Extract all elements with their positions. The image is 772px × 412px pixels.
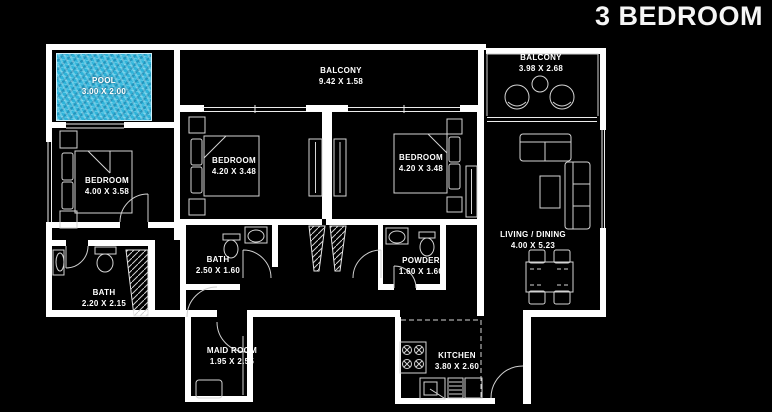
wall <box>324 105 348 112</box>
wall <box>478 48 484 108</box>
wall <box>46 44 52 317</box>
wall <box>523 310 531 404</box>
room-label-maid: MAID ROOM 1.95 X 2.55 <box>207 346 257 368</box>
wall <box>180 284 240 290</box>
wall <box>124 122 180 128</box>
wall <box>326 219 477 225</box>
wall <box>272 225 278 267</box>
coffee-table-icon <box>540 176 560 208</box>
wall <box>185 396 253 402</box>
wardrobe-icon <box>309 139 477 217</box>
outdoor-chairs-icon <box>505 76 574 109</box>
plan-title: 3 BEDROOM <box>595 1 763 32</box>
wall <box>176 44 486 50</box>
room-label-bedroom-left: BEDROOM 4.00 X 3.58 <box>85 176 129 198</box>
wall <box>174 44 180 240</box>
room-label-bedroom-right: BEDROOM 4.20 X 3.48 <box>399 153 443 175</box>
room-label-living: LIVING / DINING 4.00 X 5.23 <box>500 230 566 252</box>
swimming-pool: POOL 3.00 X 2.00 <box>56 53 152 121</box>
room-label-bath-mid: BATH 2.50 X 1.60 <box>196 255 240 277</box>
kitchen-sink-icon <box>420 378 445 399</box>
wall <box>306 105 326 112</box>
room-label-kitchen: KITCHEN 3.80 X 2.60 <box>435 351 479 373</box>
wall <box>378 225 383 287</box>
wall <box>322 112 332 219</box>
wall <box>46 122 66 128</box>
wall <box>180 105 204 112</box>
room-label-bedroom-mid: BEDROOM 4.20 X 3.48 <box>212 156 256 178</box>
wall <box>46 310 155 317</box>
wall <box>378 284 394 290</box>
room-label-balcony-right: BALCONY 3.98 X 2.68 <box>519 53 563 75</box>
wall <box>46 222 120 228</box>
wall <box>416 284 446 290</box>
wall <box>180 219 186 317</box>
wall <box>247 310 400 317</box>
room-label-pool: POOL 3.00 X 2.00 <box>82 76 126 98</box>
wall <box>185 317 191 402</box>
wall <box>395 398 495 404</box>
wall <box>395 317 401 404</box>
wall <box>155 310 217 317</box>
toilet-icon <box>95 232 435 272</box>
wall <box>523 310 606 317</box>
wall <box>46 44 180 50</box>
wall <box>88 240 152 246</box>
wall <box>148 240 155 317</box>
wall <box>477 105 484 316</box>
room-label-bath-left: BATH 2.20 X 2.15 <box>82 288 126 310</box>
floor-plan: 3 BEDROOM POOL 3.00 X 2.00 <box>0 0 772 412</box>
room-label-powder: POWDER 1.60 X 1.60 <box>399 256 443 278</box>
dining-table-icon <box>526 250 573 304</box>
room-label-balcony-top: BALCONY 9.42 X 1.58 <box>319 66 363 88</box>
stove-icon <box>400 342 426 373</box>
wall <box>46 240 66 246</box>
sofa-icon <box>520 134 590 229</box>
wall <box>600 48 606 316</box>
wall <box>148 222 182 228</box>
wall <box>180 219 322 225</box>
